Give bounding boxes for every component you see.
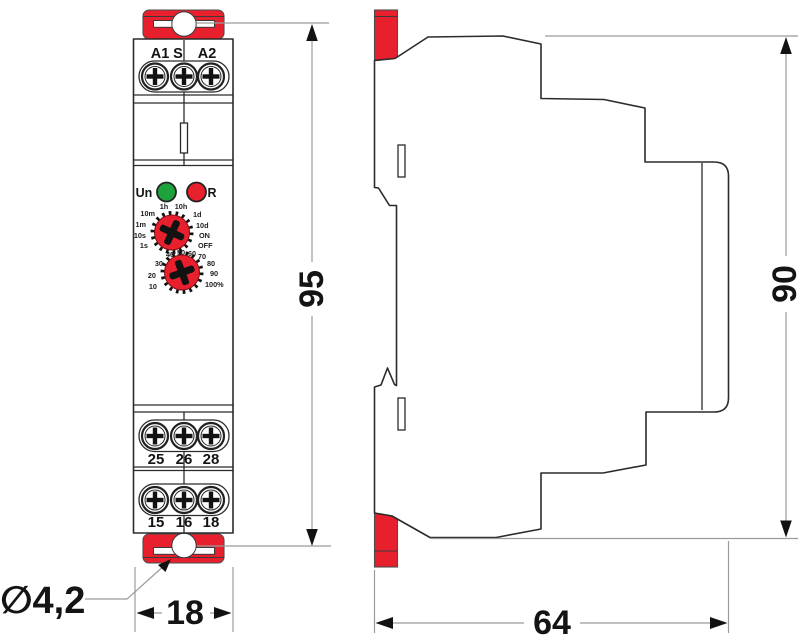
top-mounting-tab [143, 10, 224, 39]
terminal-label-25: 25 [148, 451, 165, 468]
percent-dial-label: 20 [148, 271, 156, 280]
time-dial-label: ON [199, 231, 210, 240]
front-view: A1 S A2 Un R 1h 10h 10m 1m 10s 1s 1d [134, 10, 234, 563]
dimension-18: 18 [135, 567, 233, 632]
time-dial-label: 10s [134, 231, 146, 240]
bottom-mounting-tab [143, 533, 224, 563]
r-label: R [207, 186, 216, 200]
side-view [375, 10, 729, 567]
terminal-label-s: S [173, 46, 183, 62]
r-led-red [187, 183, 206, 202]
side-depth-value: 64 [533, 604, 571, 640]
time-dial-label: 10h [175, 202, 188, 211]
time-dial-label: 1h [160, 202, 169, 211]
side-top-clip [375, 10, 398, 60]
terminal-label-18: 18 [203, 514, 220, 531]
terminal-label-28: 28 [203, 451, 220, 468]
un-led-green [157, 183, 176, 202]
side-slot-lower [398, 398, 405, 430]
relay-dimension-drawing: A1 S A2 Un R 1h 10h 10m 1m 10s 1s 1d [0, 0, 800, 640]
screw-terminals-mid[interactable] [142, 423, 224, 449]
bottom-terminal-block: 15 16 18 [139, 484, 229, 531]
percent-dial-label: 10 [149, 282, 157, 291]
terminal-label-a2: A2 [198, 46, 217, 62]
screw-terminals-top[interactable] [142, 64, 224, 90]
front-height-value: 95 [293, 270, 331, 308]
terminal-label-16: 16 [176, 514, 193, 531]
time-dial-label: 1d [193, 210, 202, 219]
side-height-value: 90 [766, 265, 800, 303]
front-width-value: 18 [166, 594, 204, 632]
percent-dial-label: 100% [205, 280, 224, 289]
side-housing-profile [375, 36, 729, 538]
screw-terminals-bottom[interactable] [142, 487, 224, 513]
time-dial-label: 1s [140, 241, 148, 250]
top-mounting-hole [172, 12, 196, 36]
percent-dial-label: 90 [210, 269, 218, 278]
dimension-64: 64 [375, 541, 729, 640]
time-dial-label: 10d [196, 221, 209, 230]
time-dial-label: 10m [140, 209, 155, 218]
terminal-label-a1: A1 [151, 46, 170, 62]
percent-dial-label: 80 [207, 259, 215, 268]
bottom-mounting-hole [172, 533, 196, 557]
percent-dial-label: 30 [155, 259, 163, 268]
hole-diameter-value: ∅4,2 [0, 580, 85, 622]
mid-terminal-block: 25 26 28 [139, 420, 229, 468]
un-label: Un [136, 186, 153, 200]
time-dial-label: 1m [135, 220, 146, 229]
front-vent-slot [181, 123, 188, 153]
terminal-label-15: 15 [148, 514, 165, 531]
time-dial-label: OFF [198, 241, 213, 250]
terminal-label-26: 26 [176, 451, 193, 468]
side-bottom-clip [375, 513, 398, 567]
side-slot-upper [398, 145, 405, 177]
